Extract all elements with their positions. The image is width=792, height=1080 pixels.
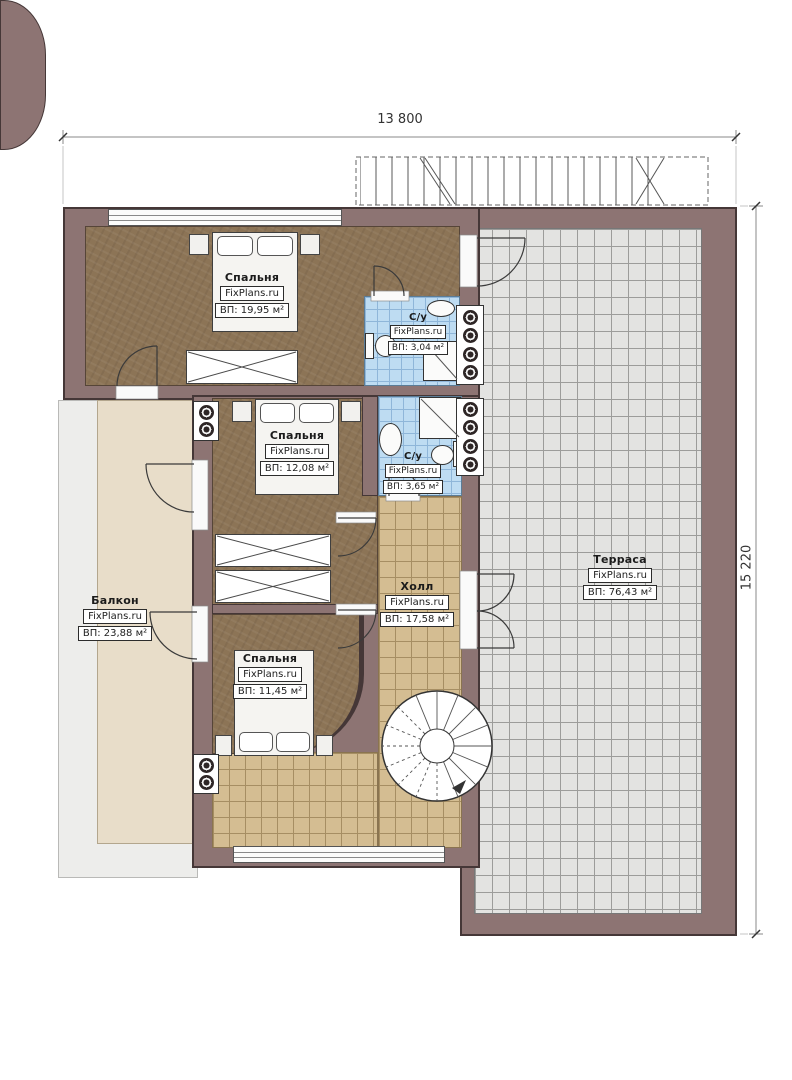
branding-box: FixPlans.ru xyxy=(238,667,302,682)
room-area-box: ВП: 3,04 м² xyxy=(388,341,448,355)
nightstand xyxy=(316,735,333,756)
room-label-bedroom1: Спальня FixPlans.ru ВП: 19,95 м² xyxy=(192,271,312,318)
room-area-box: ВП: 19,95 м² xyxy=(215,303,289,318)
branding-box: FixPlans.ru xyxy=(385,464,441,478)
room-label-bathroom2: С/у FixPlans.ru ВП: 3,65 м² xyxy=(376,451,450,494)
branding-box: FixPlans.ru xyxy=(83,609,147,624)
room-name: С/у xyxy=(409,312,427,323)
room-area-box: ВП: 23,88 м² xyxy=(78,626,152,641)
window-south xyxy=(233,846,445,863)
nightstand xyxy=(189,234,209,255)
room-area-box: ВП: 17,58 м² xyxy=(380,612,454,627)
toilet-tank xyxy=(365,333,374,359)
room-hall-floor xyxy=(378,496,462,848)
room-area-box: ВП: 76,43 м² xyxy=(583,585,657,600)
room-name: Балкон xyxy=(91,594,139,607)
column-group xyxy=(456,398,484,476)
wall-hall-bedroom3 xyxy=(212,604,378,614)
pillow-icon xyxy=(217,236,253,256)
nightstand xyxy=(215,735,232,756)
dimension-width-label: 13 800 xyxy=(340,112,460,127)
room-name: Холл xyxy=(401,580,434,593)
wardrobe-bedroom2 xyxy=(215,534,331,567)
floor-plan-canvas: 13 800 15 220 xyxy=(0,0,792,1080)
window-north xyxy=(108,209,342,226)
branding-box: FixPlans.ru xyxy=(220,286,284,301)
room-name: Спальня xyxy=(243,652,297,665)
room-label-bedroom2: Спальня FixPlans.ru ВП: 12,08 м² xyxy=(237,429,357,476)
dimension-height-label: 15 220 xyxy=(740,508,755,628)
nightstand xyxy=(232,401,252,422)
room-label-bedroom3: Спальня FixPlans.ru ВП: 11,45 м² xyxy=(210,652,330,699)
wardrobe-bedroom1 xyxy=(186,350,298,384)
curved-wall-bump xyxy=(0,0,46,150)
column-group xyxy=(193,401,219,441)
nightstand xyxy=(341,401,361,422)
pillow-icon xyxy=(276,732,310,752)
room-hall-floor-south xyxy=(212,752,378,848)
branding-box: FixPlans.ru xyxy=(385,595,449,610)
room-label-terrace: Терраса FixPlans.ru ВП: 76,43 м² xyxy=(560,553,680,600)
room-label-hall: Холл FixPlans.ru ВП: 17,58 м² xyxy=(357,580,477,627)
room-area-box: ВП: 11,45 м² xyxy=(233,684,307,699)
pergola-hatch xyxy=(356,157,708,205)
room-label-balcony: Балкон FixPlans.ru ВП: 23,88 м² xyxy=(53,594,177,641)
room-name: Терраса xyxy=(593,553,646,566)
pillow-icon xyxy=(299,403,334,423)
room-area-box: ВП: 3,65 м² xyxy=(383,480,443,494)
shower xyxy=(419,397,461,439)
room-area-box: ВП: 12,08 м² xyxy=(260,461,334,476)
room-label-bathroom1: С/у FixPlans.ru ВП: 3,04 м² xyxy=(381,312,455,355)
column-group xyxy=(193,754,219,794)
room-name: Спальня xyxy=(270,429,324,442)
pillow-icon xyxy=(260,403,295,423)
wardrobe-bedroom3 xyxy=(215,570,331,603)
nightstand xyxy=(300,234,320,255)
room-name: Спальня xyxy=(225,271,279,284)
pillow-icon xyxy=(257,236,293,256)
column-group xyxy=(456,305,484,385)
pillow-icon xyxy=(239,732,273,752)
room-name: С/у xyxy=(404,451,422,462)
branding-box: FixPlans.ru xyxy=(588,568,652,583)
branding-box: FixPlans.ru xyxy=(265,444,329,459)
branding-box: FixPlans.ru xyxy=(390,325,446,339)
